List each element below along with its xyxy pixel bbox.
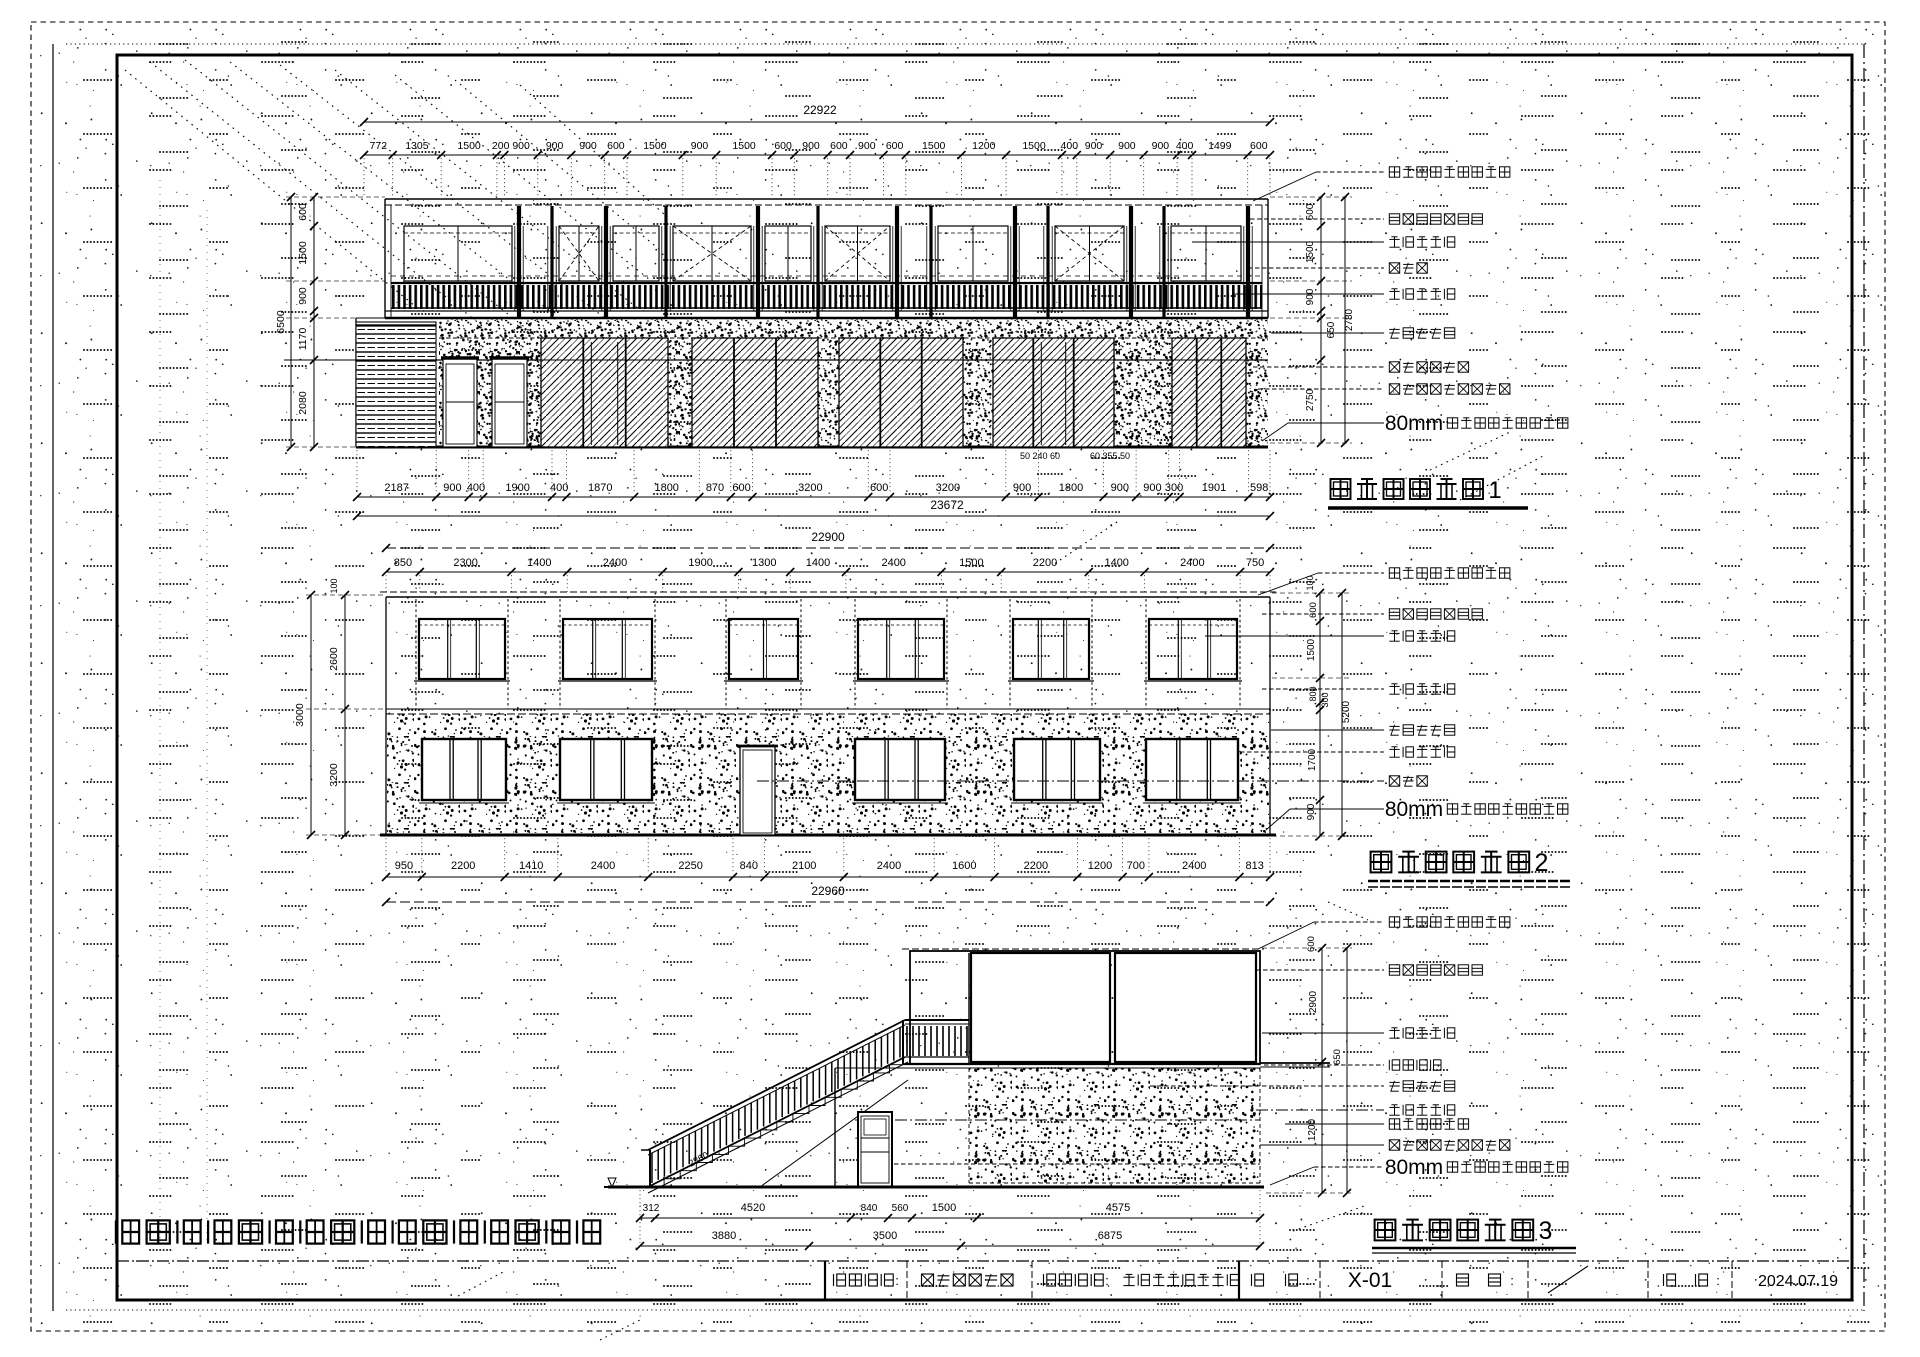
svg-text::: : — [1510, 1273, 1514, 1288]
svg-text:5200: 5200 — [1341, 700, 1352, 723]
svg-text:900: 900 — [1143, 482, 1161, 494]
svg-text:1500: 1500 — [1306, 638, 1317, 661]
svg-text:900: 900 — [802, 140, 820, 152]
svg-text:900: 900 — [691, 140, 709, 152]
svg-text:3500: 3500 — [873, 1230, 897, 1242]
svg-text:600: 600 — [870, 482, 888, 494]
svg-text:400: 400 — [550, 482, 568, 494]
svg-text:600: 600 — [1308, 602, 1319, 618]
svg-text:600: 600 — [1306, 936, 1317, 952]
svg-text:950: 950 — [395, 860, 413, 872]
svg-text:600: 600 — [607, 140, 625, 152]
svg-text:900: 900 — [1305, 288, 1316, 305]
svg-text::: : — [1105, 1273, 1109, 1288]
svg-text:400: 400 — [467, 482, 485, 494]
svg-text:1200: 1200 — [1307, 1118, 1318, 1141]
svg-text:3880: 3880 — [712, 1230, 736, 1242]
svg-text:2400: 2400 — [591, 860, 615, 872]
svg-text:80mm: 80mm — [1385, 798, 1443, 821]
svg-text:1500: 1500 — [1022, 140, 1046, 152]
svg-text:560: 560 — [892, 1203, 909, 1214]
svg-text:80mm: 80mm — [1385, 412, 1443, 435]
svg-text:900: 900 — [1118, 140, 1136, 152]
svg-text:1500: 1500 — [959, 557, 983, 569]
svg-text:600: 600 — [297, 203, 309, 221]
svg-text:2400: 2400 — [1182, 860, 1206, 872]
svg-text:100: 100 — [329, 578, 339, 593]
svg-text:2187: 2187 — [384, 482, 408, 494]
svg-text:2400: 2400 — [877, 860, 901, 872]
svg-text:1800: 1800 — [654, 482, 678, 494]
svg-text:1170: 1170 — [297, 328, 309, 351]
svg-text:4520: 4520 — [741, 1202, 765, 1214]
svg-text:2200: 2200 — [1024, 860, 1048, 872]
svg-text:850: 850 — [394, 557, 412, 569]
svg-text:2600: 2600 — [328, 647, 340, 671]
svg-text:3000: 3000 — [294, 703, 306, 727]
svg-text:870: 870 — [706, 482, 724, 494]
svg-text:6875: 6875 — [1098, 1230, 1122, 1242]
svg-text:50 240 60: 50 240 60 — [1020, 451, 1060, 461]
svg-text:813: 813 — [1246, 860, 1264, 872]
svg-text:2200: 2200 — [1033, 557, 1057, 569]
svg-text:1400: 1400 — [1104, 557, 1128, 569]
svg-text:2400: 2400 — [603, 557, 627, 569]
svg-text:2400: 2400 — [1180, 557, 1204, 569]
svg-text:1900: 1900 — [505, 482, 529, 494]
svg-text:4575: 4575 — [1106, 1202, 1130, 1214]
svg-text:2080: 2080 — [297, 391, 309, 415]
svg-text:2780: 2780 — [1344, 308, 1355, 331]
svg-text:1500: 1500 — [732, 140, 756, 152]
svg-text:1400: 1400 — [806, 557, 830, 569]
svg-text:840: 840 — [740, 860, 758, 872]
svg-text:598: 598 — [1250, 482, 1268, 494]
svg-text:1500: 1500 — [643, 140, 667, 152]
svg-text:1600: 1600 — [952, 860, 976, 872]
svg-text:400: 400 — [1176, 140, 1194, 152]
svg-text:300: 300 — [1320, 692, 1330, 707]
svg-text:1500: 1500 — [1305, 240, 1316, 263]
svg-text:1901: 1901 — [1202, 482, 1226, 494]
svg-text:900: 900 — [297, 287, 309, 305]
svg-text:900: 900 — [1152, 140, 1170, 152]
svg-text:900: 900 — [512, 140, 530, 152]
svg-text:1500: 1500 — [297, 241, 309, 265]
svg-text:900: 900 — [1085, 140, 1103, 152]
svg-text:3: 3 — [1538, 1217, 1552, 1245]
svg-text:6500: 6500 — [275, 310, 287, 334]
svg-text:3200: 3200 — [328, 763, 340, 787]
svg-text:1200: 1200 — [1088, 860, 1112, 872]
svg-text:1200: 1200 — [972, 140, 996, 152]
svg-text:900: 900 — [443, 482, 461, 494]
svg-text:650: 650 — [1332, 1049, 1343, 1065]
svg-text:900: 900 — [546, 140, 564, 152]
svg-text:3200: 3200 — [798, 482, 822, 494]
svg-text:400: 400 — [1061, 140, 1079, 152]
svg-text:80mm: 80mm — [1385, 1156, 1443, 1179]
svg-text:2400: 2400 — [881, 557, 905, 569]
svg-text:100: 100 — [1305, 575, 1315, 590]
svg-text:2: 2 — [1534, 849, 1548, 877]
svg-text:2250: 2250 — [678, 860, 702, 872]
svg-text:650: 650 — [1326, 321, 1337, 338]
svg-text:1305: 1305 — [405, 140, 429, 152]
svg-text:1500: 1500 — [457, 140, 481, 152]
svg-text:600: 600 — [886, 140, 904, 152]
svg-text:900: 900 — [1306, 803, 1317, 820]
svg-text:600: 600 — [732, 482, 750, 494]
svg-text:772: 772 — [370, 140, 388, 152]
svg-text:600: 600 — [1305, 203, 1316, 220]
svg-text:200: 200 — [492, 140, 510, 152]
svg-text::: : — [1306, 1273, 1310, 1288]
svg-text:3200: 3200 — [936, 482, 960, 494]
svg-text:1800: 1800 — [1059, 482, 1083, 494]
svg-text:1870: 1870 — [588, 482, 612, 494]
svg-text:300: 300 — [1165, 482, 1183, 494]
svg-text:2300: 2300 — [453, 557, 477, 569]
svg-text:600: 600 — [774, 140, 792, 152]
svg-text:900: 900 — [1111, 482, 1129, 494]
svg-text:2024.07.19: 2024.07.19 — [1758, 1273, 1838, 1290]
svg-text:600: 600 — [1250, 140, 1268, 152]
svg-text:1300: 1300 — [752, 557, 776, 569]
svg-text:22922: 22922 — [803, 103, 837, 117]
svg-text:1900: 1900 — [688, 557, 712, 569]
svg-text:900: 900 — [1013, 482, 1031, 494]
svg-text::: : — [1716, 1273, 1720, 1288]
svg-text:1400: 1400 — [527, 557, 551, 569]
svg-text:750: 750 — [1246, 557, 1264, 569]
svg-text:2100: 2100 — [792, 860, 816, 872]
svg-text:1410: 1410 — [519, 860, 543, 872]
svg-text:900: 900 — [858, 140, 876, 152]
svg-text:60 355 50: 60 355 50 — [1090, 451, 1130, 461]
svg-text:23672: 23672 — [930, 498, 964, 512]
svg-text:700: 700 — [1127, 860, 1145, 872]
svg-text:2900: 2900 — [1308, 990, 1319, 1013]
svg-text:1499: 1499 — [1208, 140, 1232, 152]
svg-text:1: 1 — [1488, 477, 1501, 504]
svg-text:900: 900 — [579, 140, 597, 152]
svg-text:600: 600 — [830, 140, 848, 152]
svg-text:1500: 1500 — [932, 1202, 956, 1214]
svg-text:2200: 2200 — [451, 860, 475, 872]
svg-text:22960: 22960 — [811, 884, 845, 898]
svg-text:X-01: X-01 — [1348, 1269, 1392, 1292]
svg-text:22900: 22900 — [811, 530, 845, 544]
svg-text::: : — [895, 1273, 899, 1288]
svg-text:312: 312 — [643, 1203, 660, 1214]
svg-text:1500: 1500 — [922, 140, 946, 152]
svg-text:840: 840 — [861, 1203, 878, 1214]
svg-text:2750: 2750 — [1305, 388, 1316, 411]
